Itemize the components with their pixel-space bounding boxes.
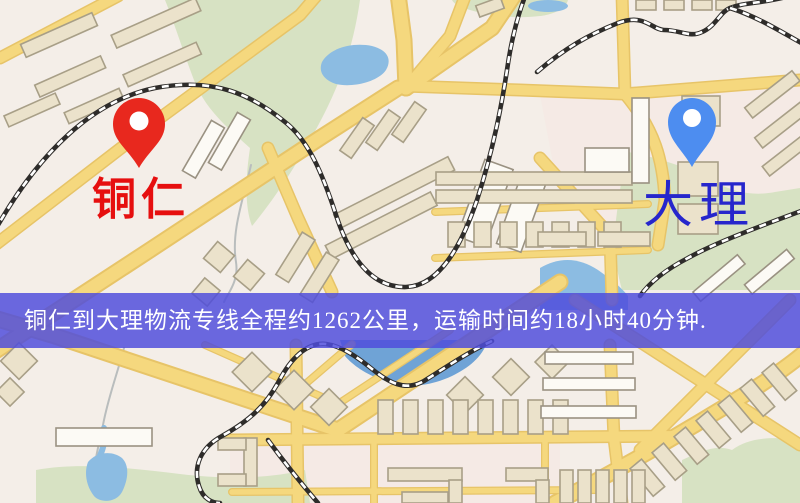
map-canvas — [0, 0, 800, 503]
origin-pin-icon — [113, 98, 165, 168]
origin-city-label: 铜仁 — [92, 178, 190, 222]
route-info-banner: 铜仁到大理物流专线全程约1262公里，运输时间约18小时40分钟. — [0, 293, 800, 348]
destination-city-label: 大理 — [643, 180, 755, 230]
park-top-center — [165, 0, 360, 226]
route-info-text: 铜仁到大理物流专线全程约1262公里，运输时间约18小时40分钟. — [24, 293, 707, 348]
map-image: 铜仁 大理 铜仁到大理物流专线全程约1262公里，运输时间约18小时40分钟. — [0, 0, 800, 503]
